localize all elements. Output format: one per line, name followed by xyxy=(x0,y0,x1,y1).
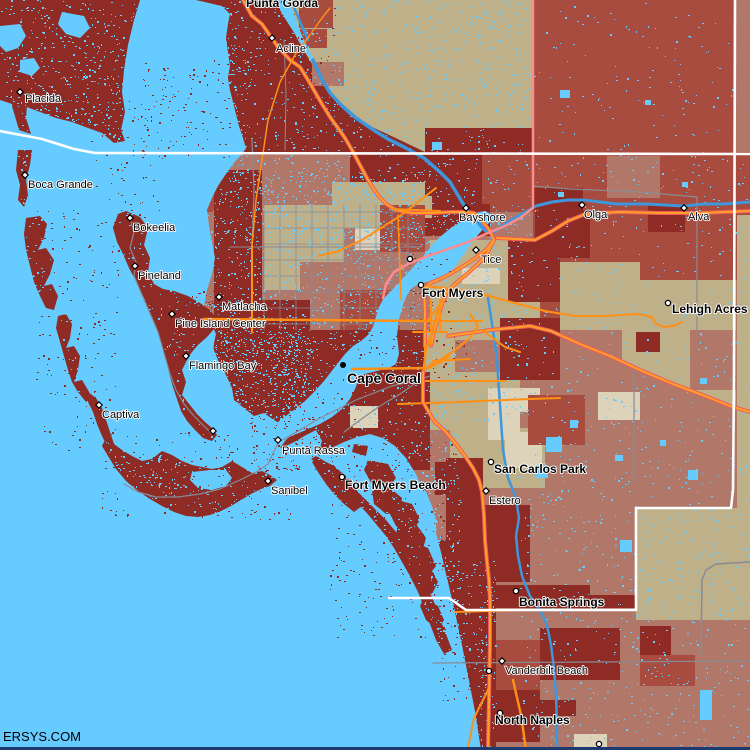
svg-text:North Naples: North Naples xyxy=(495,713,570,727)
svg-text:Tice: Tice xyxy=(481,254,501,266)
svg-text:Vanderbilt Beach: Vanderbilt Beach xyxy=(505,665,588,677)
svg-text:Punta Rassa: Punta Rassa xyxy=(282,445,346,457)
svg-text:Boca Grande: Boca Grande xyxy=(28,179,93,191)
svg-text:Alva: Alva xyxy=(688,211,710,223)
svg-text:Olga: Olga xyxy=(584,209,608,221)
svg-text:Bonita Springs: Bonita Springs xyxy=(519,595,605,609)
svg-text:Matlacha: Matlacha xyxy=(222,301,268,313)
svg-text:Placida: Placida xyxy=(25,93,62,105)
svg-text:Captiva: Captiva xyxy=(102,409,140,421)
svg-text:Flamingo Bay: Flamingo Bay xyxy=(189,360,257,372)
svg-text:Fort Myers: Fort Myers xyxy=(422,286,484,300)
svg-text:Estero: Estero xyxy=(489,495,521,507)
svg-text:Cape Coral: Cape Coral xyxy=(347,370,421,386)
svg-text:Pineland: Pineland xyxy=(138,270,181,282)
svg-text:Punta Gorda: Punta Gorda xyxy=(246,0,318,10)
svg-text:Bokeelia: Bokeelia xyxy=(133,222,176,234)
svg-text:Sanibel: Sanibel xyxy=(271,485,308,497)
svg-text:Lehigh Acres: Lehigh Acres xyxy=(672,302,748,316)
svg-text:Bayshore: Bayshore xyxy=(459,212,505,224)
svg-text:Pine Island Center: Pine Island Center xyxy=(175,318,266,330)
svg-text:ERSYS.COM: ERSYS.COM xyxy=(3,729,81,744)
svg-text:Acline: Acline xyxy=(276,43,306,55)
svg-text:San Carlos Park: San Carlos Park xyxy=(494,462,586,476)
svg-text:Fort Myers Beach: Fort Myers Beach xyxy=(345,478,446,492)
